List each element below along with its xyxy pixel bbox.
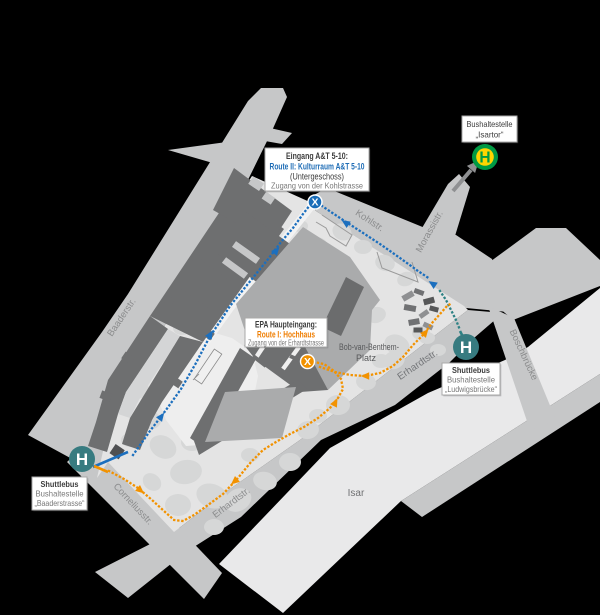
svg-text:„Ludwigsbrücke“: „Ludwigsbrücke“ xyxy=(445,384,497,394)
svg-text:H: H xyxy=(479,150,490,167)
svg-text:Bob-van-Benthem-: Bob-van-Benthem- xyxy=(339,342,399,352)
svg-text:Shuttlebus: Shuttlebus xyxy=(41,479,79,489)
svg-text:Platz: Platz xyxy=(356,353,377,363)
svg-text:H: H xyxy=(76,450,88,469)
svg-text:X: X xyxy=(311,197,318,209)
svg-text:Eingang A&T 5-10:: Eingang A&T 5-10: xyxy=(286,151,348,161)
svg-text:Route II: Kulturraum A&T 5-10: Route II: Kulturraum A&T 5-10 xyxy=(270,162,365,172)
svg-text:H: H xyxy=(460,338,472,357)
svg-text:„Isartor“: „Isartor“ xyxy=(476,130,504,140)
svg-text:EPA Haupteingang:: EPA Haupteingang: xyxy=(255,320,317,330)
svg-text:Isar: Isar xyxy=(348,488,365,499)
svg-text:X: X xyxy=(304,356,311,368)
svg-text:Zugang von der Kohlstrasse: Zugang von der Kohlstrasse xyxy=(271,181,363,191)
svg-text:„Baaderstrasse“: „Baaderstrasse“ xyxy=(35,498,85,508)
svg-text:Bushaltestelle: Bushaltestelle xyxy=(447,375,495,385)
svg-text:Zugang von der Erhardtstrasse: Zugang von der Erhardtstrasse xyxy=(248,339,324,348)
svg-text:Shuttlebus: Shuttlebus xyxy=(452,365,490,375)
svg-text:Bushaltestelle: Bushaltestelle xyxy=(36,489,84,499)
svg-text:Bushaltestelle: Bushaltestelle xyxy=(467,119,513,129)
